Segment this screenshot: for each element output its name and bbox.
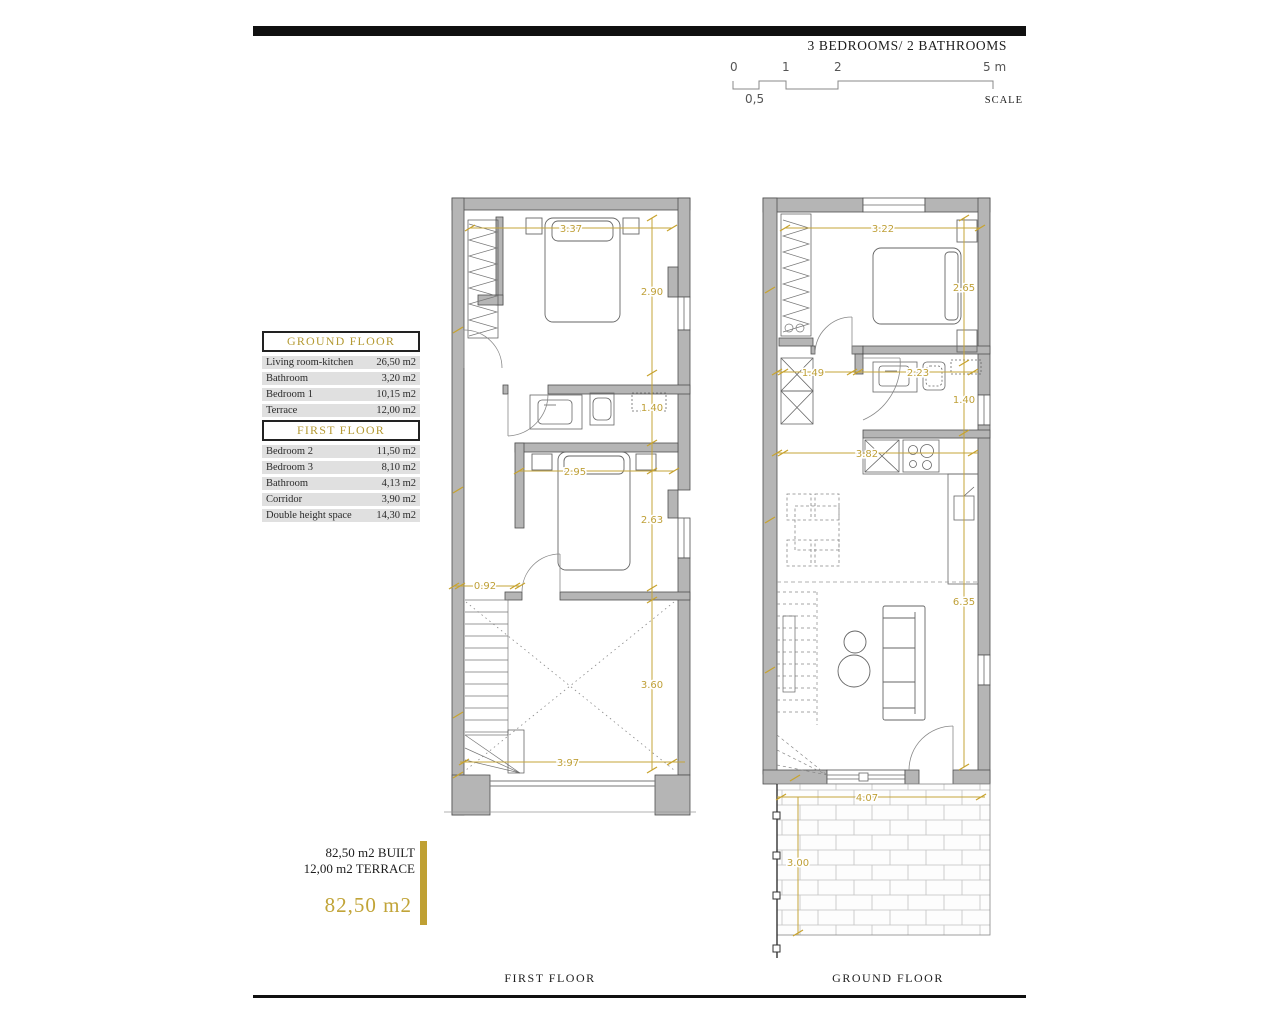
dim-bedroom2-height: 2.90	[641, 287, 663, 298]
bed-bedroom2-icon	[526, 218, 639, 322]
door-bedroom3-icon	[522, 554, 560, 592]
entrance-door-icon	[909, 726, 953, 770]
dim-first-top-width: 3.37	[560, 224, 582, 235]
scale-bar-line	[733, 81, 993, 89]
plan-subtitle: 3 BEDROOMS/ 2 BATHROOMS	[700, 38, 1007, 54]
row-value: 8,10 m2	[382, 462, 416, 473]
row-value: 4,13 m2	[382, 478, 416, 489]
dim-bathroom-width: 2.23	[907, 368, 929, 379]
kitchen-icon	[863, 438, 978, 584]
dim-terrace-width: 4.07	[856, 793, 878, 804]
dim-bedroom3-height: 2.63	[641, 515, 663, 526]
bottom-black-line	[253, 995, 1026, 998]
total-area: 82,50 m2	[250, 893, 412, 918]
row-value: 10,15 m2	[376, 389, 416, 400]
gold-accent-bar	[420, 841, 427, 925]
dim-kitchen-width: 3.82	[856, 449, 878, 460]
row-value: 12,00 m2	[376, 405, 416, 416]
table-row: Bedroom 1 10,15 m2	[262, 388, 420, 401]
dim-first-bottom-width: 3.97	[557, 758, 579, 769]
ground-floor-table: GROUND FLOOR Living room-kitchen 26,50 m…	[262, 331, 420, 417]
first-floor-table-title: FIRST FLOOR	[262, 420, 420, 441]
scale-label: SCALE	[985, 95, 1023, 106]
row-label: Bathroom	[266, 373, 308, 384]
floor-plan-sheet: 3 BEDROOMS/ 2 BATHROOMS 0 1 2 5 m 0,5 SC…	[0, 0, 1280, 1024]
dim-bathroom-height: 1.40	[641, 403, 663, 414]
dim-bathroom-height: 1.40	[953, 395, 975, 406]
scale-tick-1: 1	[782, 60, 790, 74]
top-black-bar	[253, 26, 1026, 36]
sofa-icon	[883, 606, 925, 720]
first-floor-plan: 3.37 2.90 1.40 2.95 2.63 0.92 3.60 3.97	[440, 190, 700, 822]
row-label: Bedroom 2	[266, 446, 313, 457]
table-row: Corridor 3,90 m2	[262, 493, 420, 506]
dim-living-height: 6.35	[953, 597, 975, 608]
scale-tick-5: 5 m	[983, 60, 1006, 74]
scale-tick-0: 0	[730, 60, 738, 74]
ground-floor-table-title: GROUND FLOOR	[262, 331, 420, 352]
door-bedroom1-icon	[815, 317, 852, 354]
dining-table-icon	[787, 494, 839, 566]
row-value: 3,90 m2	[382, 494, 416, 505]
scale-tick-2: 2	[834, 60, 842, 74]
table-row: Bedroom 2 11,50 m2	[262, 445, 420, 458]
bed-bedroom3-icon	[532, 452, 656, 570]
dim-terrace-height: 3.00	[787, 858, 809, 869]
dim-hall-width: 1.49	[802, 368, 824, 379]
table-row: Bathroom 4,13 m2	[262, 477, 420, 490]
ground-floor-caption: GROUND FLOOR	[818, 971, 958, 986]
row-label: Double height space	[266, 510, 352, 521]
row-label: Bedroom 1	[266, 389, 313, 400]
row-value: 26,50 m2	[376, 357, 416, 368]
row-value: 11,50 m2	[377, 446, 416, 457]
table-row: Living room-kitchen 26,50 m2	[262, 356, 420, 369]
row-label: Terrace	[266, 405, 297, 416]
terrace	[773, 784, 990, 958]
bathroom-fixtures-icon	[508, 393, 666, 436]
first-floor-table: FIRST FLOOR Bedroom 2 11,50 m2 Bedroom 3…	[262, 420, 420, 522]
table-row: Double height space 14,30 m2	[262, 509, 420, 522]
ground-floor-plan: 3.22 2.65 1.49 2.23 1.40 3.82 6.35 4.07 …	[755, 190, 1005, 965]
row-label: Bedroom 3	[266, 462, 313, 473]
wardrobe-icon	[781, 214, 811, 336]
side-tables-icon	[838, 631, 870, 687]
built-area: 82,50 m2 BUILT	[250, 845, 415, 861]
dim-stair-width: 0.92	[474, 581, 496, 592]
dim-void-height: 3.60	[641, 680, 663, 691]
scale-bar: 0 1 2 5 m 0,5 SCALE	[725, 57, 1025, 107]
first-floor-caption: FIRST FLOOR	[490, 971, 610, 986]
wardrobe-icon	[468, 220, 498, 338]
row-label: Bathroom	[266, 478, 308, 489]
terrace-area: 12,00 m2 TERRACE	[250, 861, 415, 877]
dim-bedroom3-width: 2.95	[564, 467, 586, 478]
table-row: Bedroom 3 8,10 m2	[262, 461, 420, 474]
dim-bedroom1-height: 2.65	[953, 283, 975, 294]
staircase-icon	[777, 592, 827, 775]
row-value: 14,30 m2	[376, 510, 416, 521]
row-value: 3,20 m2	[382, 373, 416, 384]
area-summary: 82,50 m2 BUILT 12,00 m2 TERRACE	[250, 845, 415, 877]
table-row: Bathroom 3,20 m2	[262, 372, 420, 385]
table-row: Terrace 12,00 m2	[262, 404, 420, 417]
dim-ground-top-width: 3.22	[872, 224, 894, 235]
row-label: Corridor	[266, 494, 302, 505]
scale-half-label: 0,5	[745, 92, 764, 106]
row-label: Living room-kitchen	[266, 357, 353, 368]
